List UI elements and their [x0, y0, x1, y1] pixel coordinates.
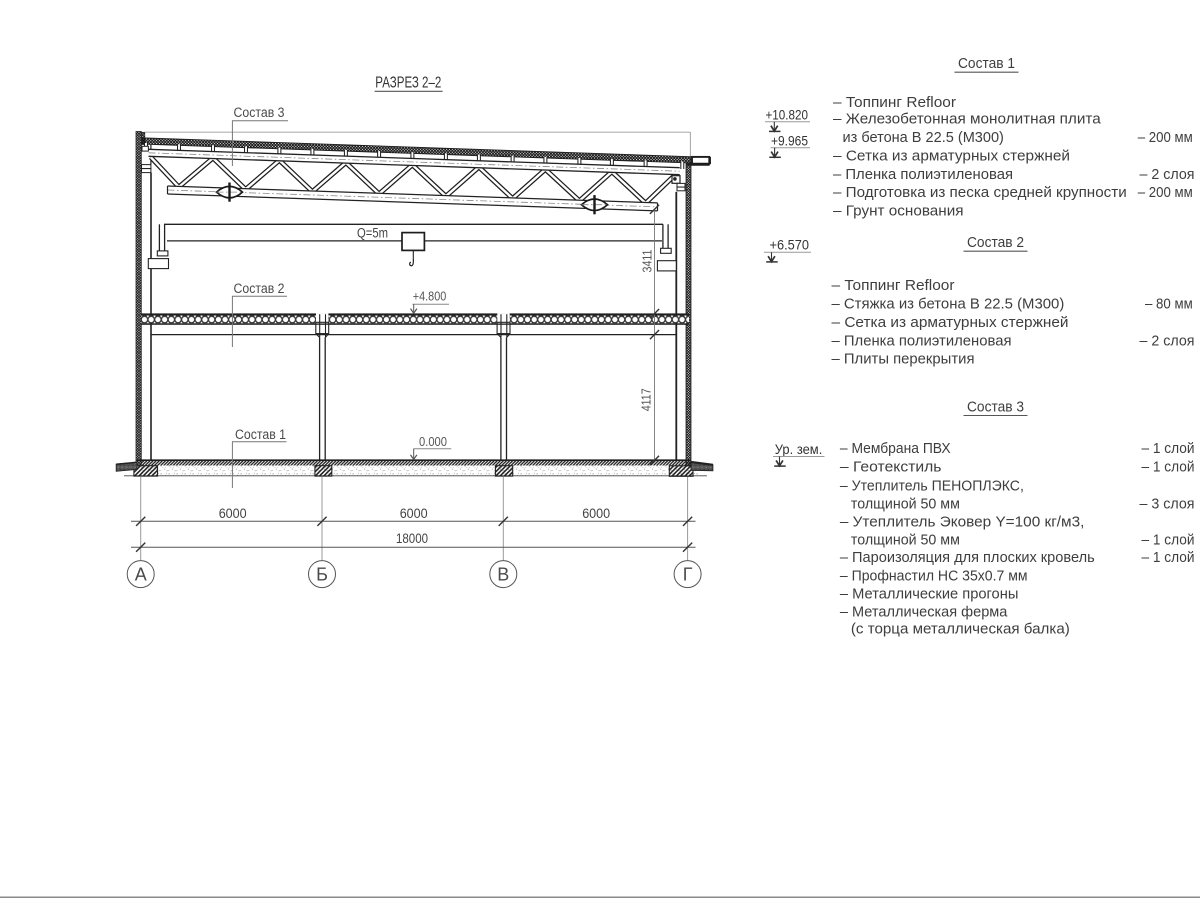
svg-text:– 2 слоя: – 2 слоя [1140, 166, 1195, 183]
svg-text:– Железобетонная монолитная п: – Железобетонная монолитная плита [833, 110, 1101, 127]
svg-text:– 1 слой: – 1 слой [1142, 440, 1195, 457]
svg-text:(с торца металлическая балка): (с торца металлическая балка) [851, 620, 1070, 637]
svg-text:Состав 1: Состав 1 [958, 55, 1015, 72]
svg-text:– Утеплитель ПЕНОПЛЭКС,: – Утеплитель ПЕНОПЛЭКС, [840, 477, 1024, 494]
svg-text:3411: 3411 [640, 250, 655, 273]
svg-text:Состав 2: Состав 2 [234, 281, 285, 296]
svg-text:РАЗРЕЗ 2–2: РАЗРЕЗ 2–2 [375, 75, 441, 92]
svg-text:толщиной 50 мм: толщиной 50 мм [851, 532, 960, 549]
svg-text:18000: 18000 [396, 531, 428, 546]
svg-text:– Грунт основания: – Грунт основания [833, 202, 964, 219]
svg-text:– Топпинг Refloor: – Топпинг Refloor [832, 277, 955, 294]
svg-text:Ур. зем.: Ур. зем. [775, 442, 823, 457]
svg-text:– 3 слоя: – 3 слоя [1140, 495, 1195, 512]
svg-text:– 1 слой: – 1 слой [1142, 532, 1195, 549]
svg-text:– Сетка из арматурных стержней: – Сетка из арматурных стержней [833, 147, 1070, 164]
svg-text:толщиной 50 мм: толщиной 50 мм [851, 495, 960, 512]
svg-text:– 80 мм: – 80 мм [1145, 296, 1193, 313]
svg-text:– Металлические прогоны: – Металлические прогоны [840, 586, 1019, 603]
svg-text:0.000: 0.000 [419, 434, 447, 449]
svg-text:В: В [497, 565, 509, 585]
svg-text:+9.965: +9.965 [771, 133, 808, 148]
svg-text:– Плиты перекрытия: – Плиты перекрытия [832, 351, 975, 368]
svg-text:– 200 мм: – 200 мм [1138, 184, 1193, 201]
svg-text:Б: Б [316, 565, 328, 585]
svg-text:– 1 слой: – 1 слой [1142, 549, 1195, 566]
svg-text:– Утеплитель Эковер Y=100 кг/м: – Утеплитель Эковер Y=100 кг/м3, [840, 514, 1085, 531]
svg-text:А: А [135, 565, 147, 585]
svg-text:Состав 2: Состав 2 [967, 234, 1024, 251]
svg-text:– Стяжка из бетона В 22.5 (М30: – Стяжка из бетона В 22.5 (М300) [832, 296, 1065, 313]
svg-text:Состав 3: Состав 3 [967, 398, 1024, 415]
svg-text:– Подготовка из песка средней: – Подготовка из песка средней крупности [833, 184, 1127, 201]
svg-text:Г: Г [683, 565, 693, 585]
svg-text:– Мембрана ПВХ: – Мембрана ПВХ [840, 440, 951, 457]
svg-text:из бетона В 22.5 (М300): из бетона В 22.5 (М300) [843, 129, 1004, 146]
svg-text:– Профнастил НС 35х0.7 мм: – Профнастил НС 35х0.7 мм [840, 567, 1028, 584]
svg-text:Состав 3: Состав 3 [234, 105, 285, 120]
svg-text:– Топпинг Refloor: – Топпинг Refloor [833, 94, 956, 111]
svg-text:– 1 слой: – 1 слой [1142, 458, 1195, 475]
svg-text:+4.800: +4.800 [413, 289, 447, 304]
svg-text:Состав 1: Состав 1 [235, 427, 286, 442]
svg-text:– Сетка из арматурных стержней: – Сетка из арматурных стержней [832, 314, 1069, 331]
svg-text:– 200 мм: – 200 мм [1138, 129, 1193, 146]
svg-text:– Пленка полиэтиленовая: – Пленка полиэтиленовая [833, 166, 1013, 183]
svg-text:6000: 6000 [582, 506, 610, 521]
svg-text:+10.820: +10.820 [766, 107, 809, 122]
svg-text:Q=5m: Q=5m [357, 225, 388, 240]
svg-text:6000: 6000 [400, 506, 428, 521]
svg-text:– Геотекстиль: – Геотекстиль [840, 458, 942, 475]
svg-text:– 2 слоя: – 2 слоя [1140, 332, 1195, 349]
svg-text:+6.570: +6.570 [770, 238, 810, 253]
svg-text:6000: 6000 [219, 506, 247, 521]
svg-text:– Пароизоляция для плоских кро: – Пароизоляция для плоских кровель [840, 549, 1095, 566]
svg-text:– Пленка полиэтиленовая: – Пленка полиэтиленовая [832, 332, 1012, 349]
svg-text:4117: 4117 [639, 388, 654, 411]
svg-text:– Металлическая ферма: – Металлическая ферма [840, 603, 1008, 620]
